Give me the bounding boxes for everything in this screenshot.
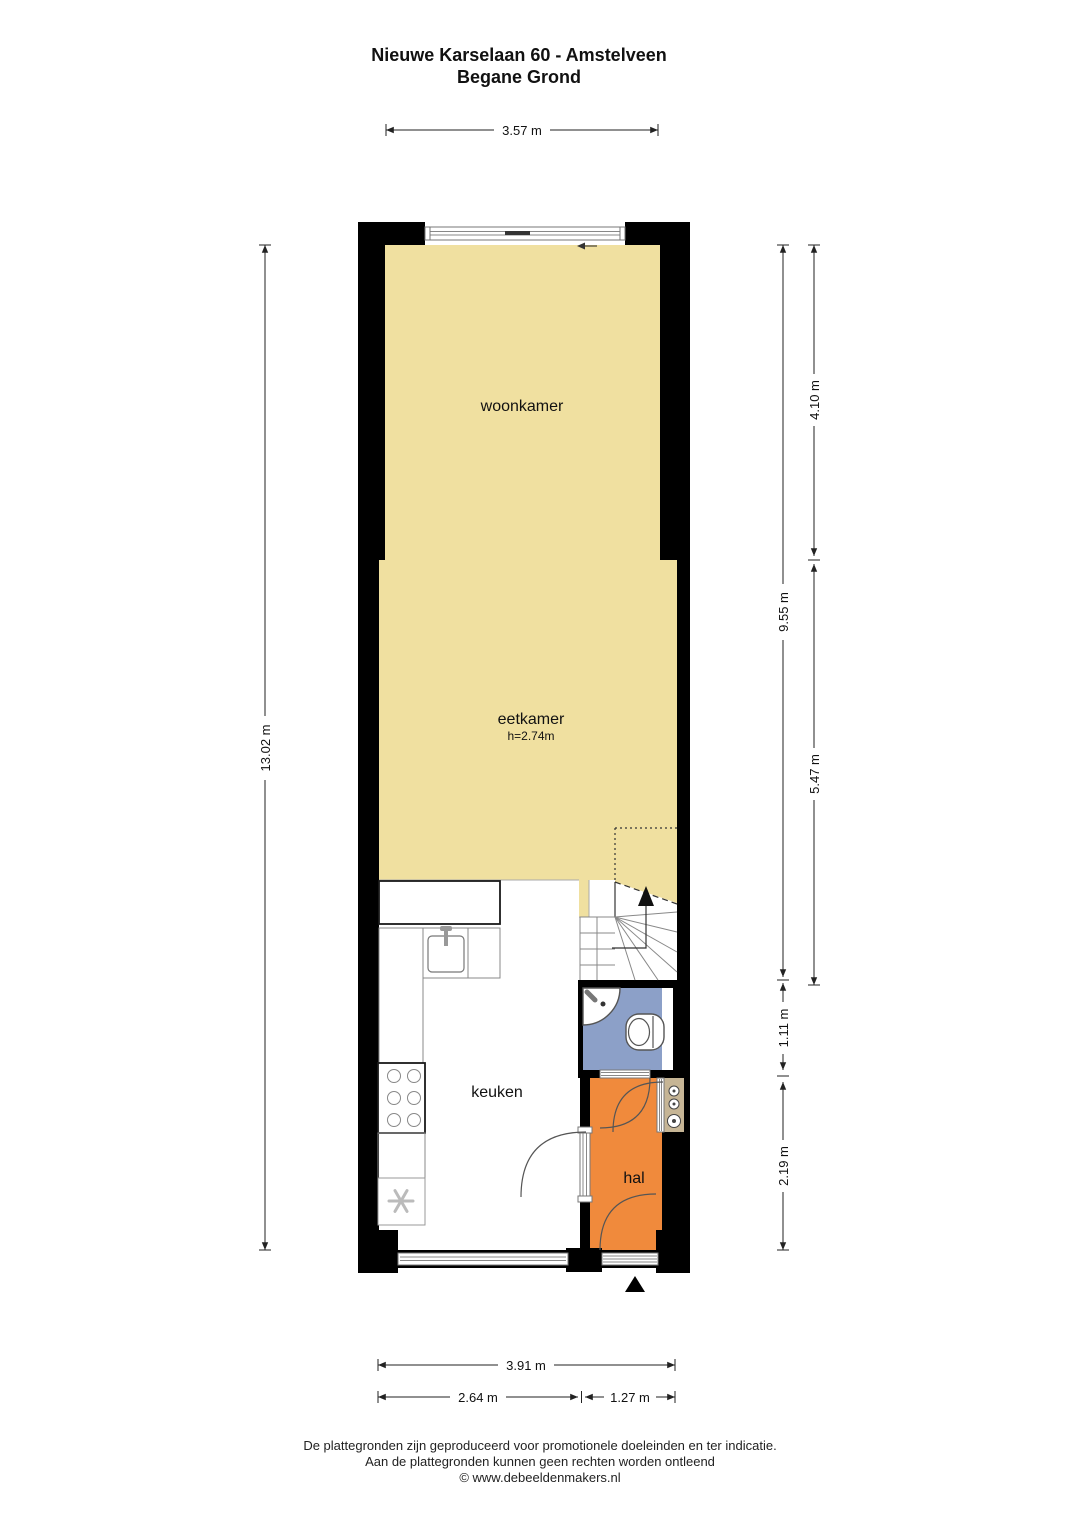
woonkamer-label: woonkamer <box>480 398 564 415</box>
footer-line1: De plattegronden zijn geproduceerd voor … <box>303 1438 776 1453</box>
hal-label: hal <box>623 1170 644 1187</box>
dim-right-woonkamer-label: 4.10 m <box>807 380 822 420</box>
footer-line3: © www.debeeldenmakers.nl <box>459 1470 620 1485</box>
dim-right-eetkamer-label: 5.47 m <box>807 754 822 794</box>
dim-bottom-hal-label: 1.27 m <box>610 1390 650 1405</box>
eetkamer-label: eetkamer <box>498 711 565 728</box>
dim-left-total-label: 13.02 m <box>258 725 273 772</box>
dim-top-width: 3.57 m <box>386 122 658 138</box>
dim-bottom-keuken-label: 2.64 m <box>458 1390 498 1405</box>
dim-right-hal-label: 2.19 m <box>776 1146 791 1186</box>
dim-left-total: 13.02 m <box>257 245 273 1250</box>
keuken-label: keuken <box>471 1084 523 1101</box>
dim-bottom-hal: 1.27 m <box>585 1389 675 1405</box>
stove-hob <box>378 1063 425 1133</box>
dim-right-woonkamer: 4.10 m <box>806 245 822 560</box>
living-dining-floor <box>379 245 677 917</box>
floorplan-canvas: Nieuwe Karselaan 60 - Amstelveen Begane … <box>0 0 1080 1527</box>
entrance-arrow <box>625 1276 645 1292</box>
dim-right-eetkamer: 5.47 m <box>806 564 822 985</box>
footer-line2: Aan de plattegronden kunnen geen rechten… <box>365 1454 715 1469</box>
appliance-unit <box>378 1178 425 1225</box>
dim-right-toilet-label: 1.11 m <box>776 1009 791 1048</box>
footer: De plattegronden zijn geproduceerd voor … <box>303 1438 776 1485</box>
kitchen-counter-top <box>379 881 500 924</box>
dim-right-upper-total-label: 9.55 m <box>776 592 791 632</box>
kitchen-window <box>398 1253 568 1265</box>
dim-top-width-label: 3.57 m <box>502 123 542 138</box>
floorplan-page: Nieuwe Karselaan 60 - Amstelveen Begane … <box>0 0 1080 1527</box>
plan-title: Nieuwe Karselaan 60 - Amstelveen <box>371 45 666 65</box>
eetkamer-height-label: h=2.74m <box>507 729 554 743</box>
plan-subtitle: Begane Grond <box>457 67 581 87</box>
dim-bottom-keuken: 2.64 m <box>378 1389 582 1405</box>
title-block: Nieuwe Karselaan 60 - Amstelveen Begane … <box>371 45 666 87</box>
dim-bottom-total-label: 3.91 m <box>506 1358 546 1373</box>
dim-right-upper-total: 9.55 m <box>775 245 791 980</box>
dim-bottom-total: 3.91 m <box>378 1357 675 1373</box>
dim-right-hal: 2.19 m <box>775 1082 791 1250</box>
dim-right-toilet: 1.11 m <box>775 983 791 1076</box>
hall-floor <box>590 1078 662 1250</box>
meters <box>668 1086 681 1128</box>
toilet <box>626 1014 664 1050</box>
